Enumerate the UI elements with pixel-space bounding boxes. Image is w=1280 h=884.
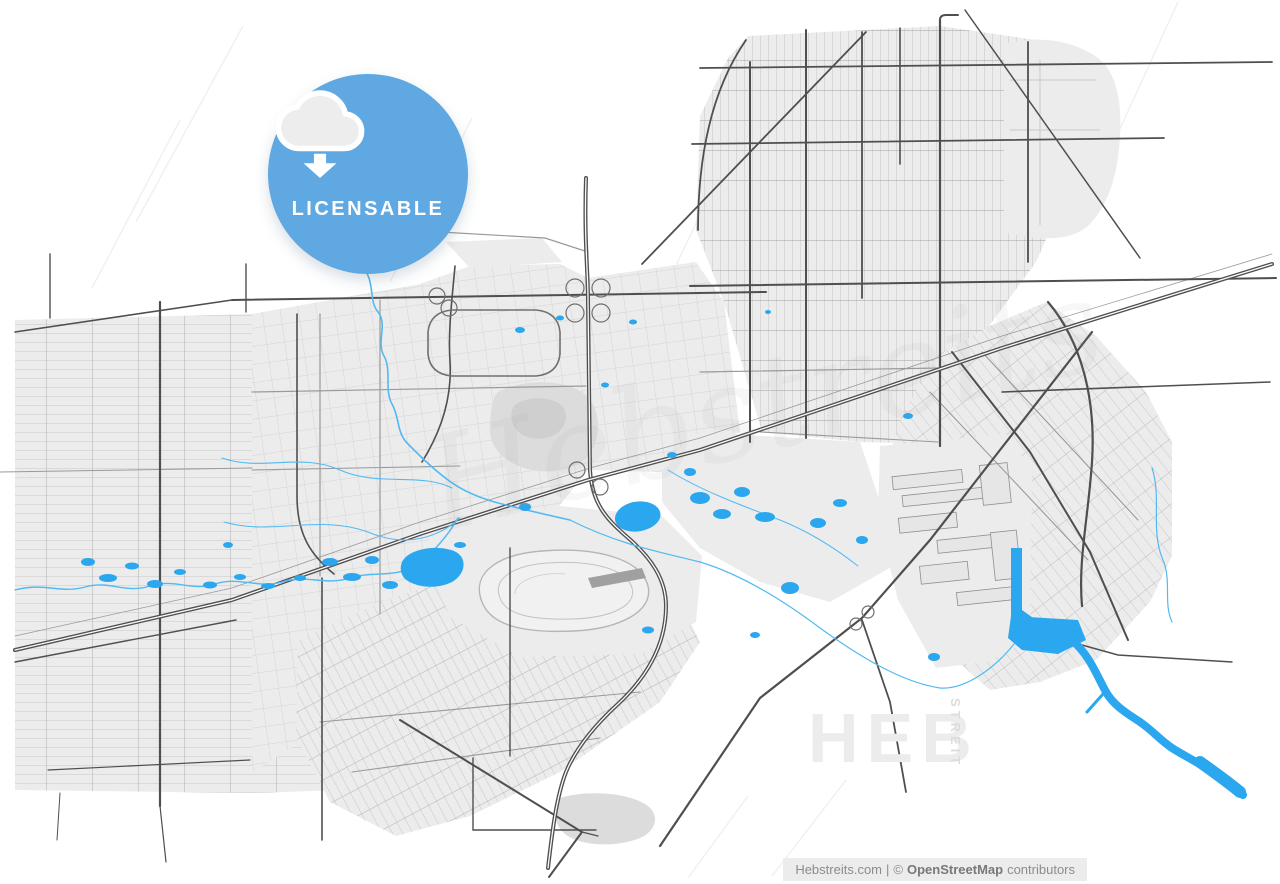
map-poster: Hebstreits HEB STREIT LICENSABLE Hebstre… <box>0 0 1280 884</box>
city-map <box>0 0 1280 884</box>
download-arrow-icon <box>304 154 337 178</box>
racetrack <box>479 550 648 631</box>
cloud-download-icon <box>316 92 420 196</box>
licensable-badge[interactable]: LICENSABLE <box>268 74 468 274</box>
attribution-osm-link[interactable]: OpenStreetMap <box>907 862 1003 877</box>
attribution-bar: Hebstreits.com | © OpenStreetMap contrib… <box>783 858 1087 881</box>
attribution-suffix: contributors <box>1007 862 1075 877</box>
attribution-divider: | <box>886 862 889 877</box>
attribution-site-link[interactable]: Hebstreits.com <box>795 862 882 877</box>
copyright-symbol: © <box>893 862 903 877</box>
badge-label: LICENSABLE <box>292 198 445 221</box>
